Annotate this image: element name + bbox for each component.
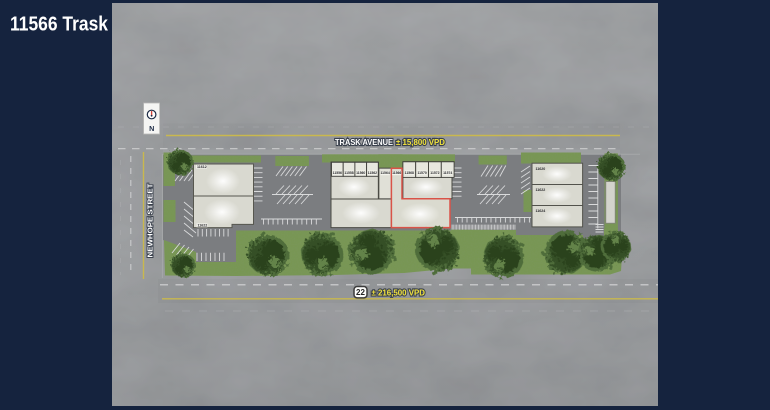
svg-text:11564: 11564 (380, 171, 389, 175)
svg-text:± 216,500 VPD: ± 216,500 VPD (372, 288, 426, 298)
svg-text:22: 22 (356, 288, 365, 297)
svg-text:11572: 11572 (430, 171, 439, 175)
svg-text:11568: 11568 (405, 171, 414, 175)
svg-text:± 15,800 VPD: ± 15,800 VPD (396, 137, 445, 147)
svg-text:11624: 11624 (536, 209, 546, 213)
svg-text:11620: 11620 (536, 167, 546, 171)
svg-text:TRASK AVENUE: TRASK AVENUE (335, 137, 393, 147)
svg-text:11562: 11562 (368, 171, 377, 175)
svg-text:11622: 11622 (536, 188, 546, 192)
svg-text:11556: 11556 (333, 171, 342, 175)
svg-text:N: N (149, 124, 154, 133)
svg-text:11560: 11560 (356, 171, 365, 175)
svg-text:11570: 11570 (417, 171, 426, 175)
svg-text:11566: 11566 (392, 171, 401, 175)
svg-text:11622: 11622 (198, 224, 208, 228)
svg-text:11574: 11574 (443, 171, 452, 175)
svg-text:11612: 11612 (197, 165, 207, 169)
svg-text:11558: 11558 (344, 171, 353, 175)
svg-text:NEWHOPE STREET: NEWHOPE STREET (145, 183, 154, 258)
svg-text:11566 Trask: 11566 Trask (10, 14, 109, 36)
